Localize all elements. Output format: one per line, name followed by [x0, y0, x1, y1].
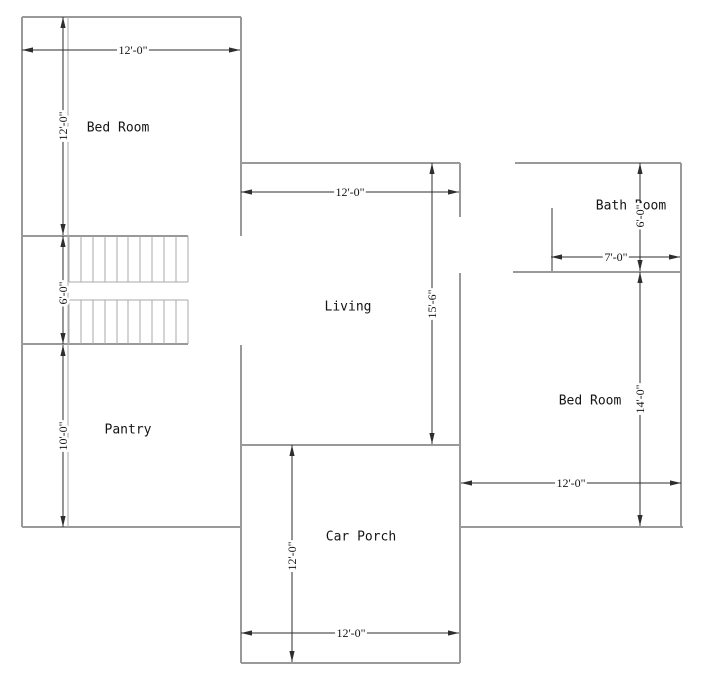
dimension-lines-layer [22, 17, 681, 662]
dim-text-carporch-width: 12'-0" [336, 626, 365, 640]
dim-text-bath-height: 6'-0" [633, 204, 647, 227]
dim-text-living-height: 15'-6" [425, 289, 439, 318]
dim-text-bed-right-height: 14'-0" [633, 384, 647, 413]
floor-plan-page: Bed Room Pantry Living Car Porch Bath Ro… [0, 0, 715, 681]
room-label-bed-right: Bed Room [559, 394, 622, 409]
dim-text-top-left-width: 12'-0" [118, 43, 147, 57]
dim-text-living-width: 12'-0" [335, 185, 364, 199]
stairs-layer [68, 17, 188, 527]
floor-plan-canvas: Bed Room Pantry Living Car Porch Bath Ro… [0, 0, 715, 681]
dim-text-stairs-height: 6'-0" [56, 281, 70, 304]
room-label-living: Living [325, 300, 372, 315]
walls-layer [22, 17, 683, 663]
dim-text-carporch-height: 12'-0" [285, 541, 299, 570]
dim-text-bed-right-width: 12'-0" [556, 476, 585, 490]
dim-text-pantry-height: 10'-0" [56, 421, 70, 450]
room-label-bath: Bath Room [596, 199, 667, 214]
room-label-bed-left: Bed Room [87, 121, 150, 136]
room-label-pantry: Pantry [105, 423, 152, 438]
room-label-car-porch: Car Porch [326, 530, 396, 545]
dim-text-bath-width: 7'-0" [604, 250, 627, 264]
dim-text-bed-left-height: 12'-0" [56, 111, 70, 140]
